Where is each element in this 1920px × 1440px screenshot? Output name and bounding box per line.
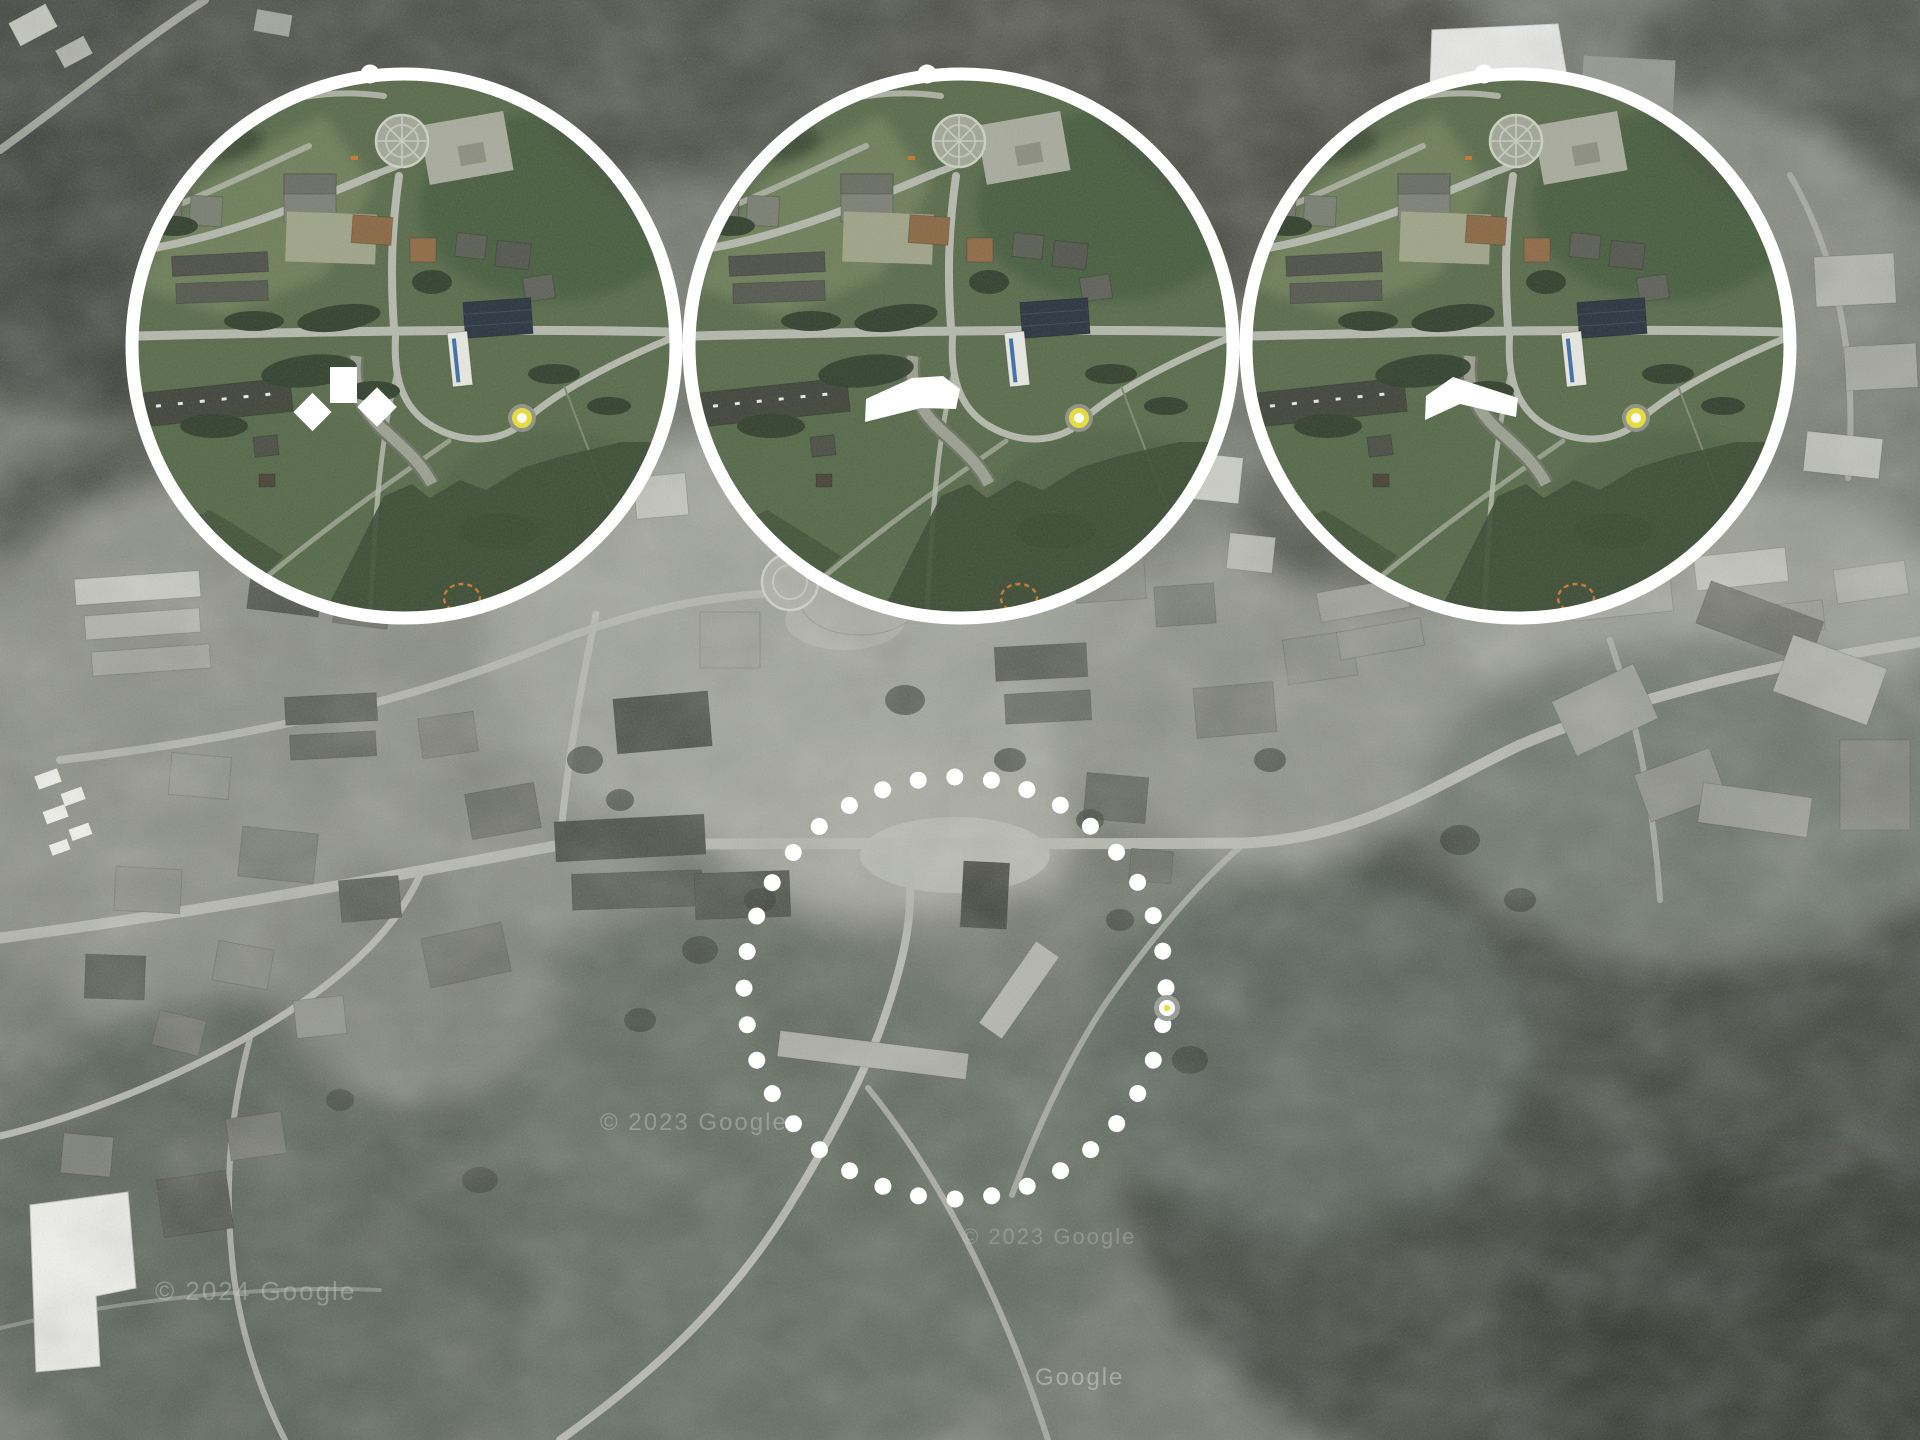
site-diagram: © 2024 Google © 2023 Google © 2023 Googl… (0, 0, 1920, 1440)
massing-volume (330, 367, 357, 403)
inset-anchor-dot (1475, 65, 1494, 84)
inset-anchor-dot (918, 65, 937, 84)
google-watermark-1: © 2024 Google (155, 1276, 356, 1306)
google-watermark-3: © 2023 Google (962, 1224, 1136, 1249)
google-watermark-4: Google (1035, 1364, 1124, 1391)
google-watermark-2: © 2023 Google (600, 1109, 788, 1136)
inset-grain-overlay (120, 60, 1800, 640)
helipad-marker-base (1154, 995, 1180, 1021)
inset-anchor-dot (361, 65, 380, 84)
satellite-base-map: © 2024 Google © 2023 Google © 2023 Googl… (0, 0, 1920, 1440)
